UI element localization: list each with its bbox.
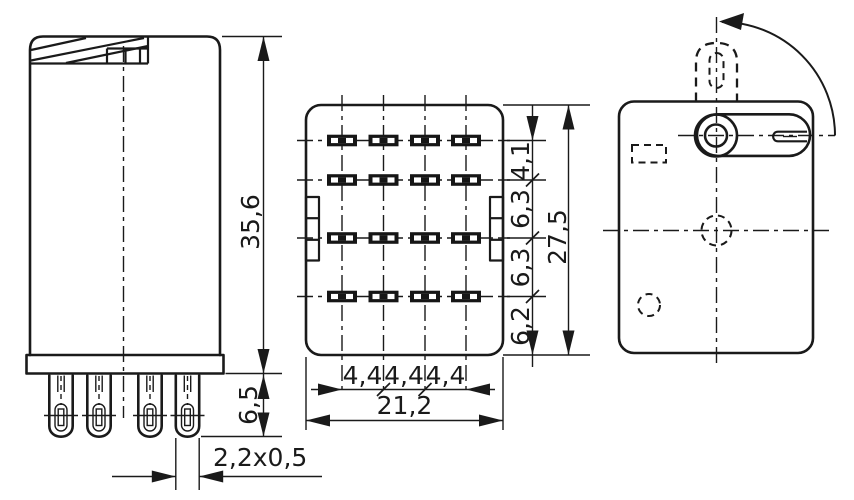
pin-socket-row [327,174,481,186]
left-notch [306,197,319,261]
pin-socket-grid [327,135,481,303]
relay-body-outline [30,37,220,356]
dim-label-pitch-2: 4,4 [384,361,424,390]
relay-dimensional-drawing: 35,6 6,5 2,2x0,5 [0,0,854,500]
dim-label-pin-cross-section: 2,2x0,5 [213,443,307,472]
pin [133,376,167,437]
dim-label-row-offset-1: 4,1 [506,141,535,181]
pin-socket-row [327,291,481,303]
front-view: 35,6 6,5 2,2x0,5 [27,37,323,491]
dim-base-height: 27,5 [543,105,575,355]
right-notch [490,197,503,261]
row-centerlines [297,141,510,297]
technical-drawing-canvas: 35,6 6,5 2,2x0,5 [0,0,854,500]
dim-pin-length: 6,5 [201,374,282,437]
dim-label-body-height: 35,6 [236,194,265,250]
front-pins [44,376,205,437]
relay-base-flange [27,355,224,374]
pin [44,376,78,437]
rotation-arrowhead [719,13,744,30]
pin [171,376,205,437]
dim-label-base-height: 27,5 [543,209,572,265]
dim-label-row-offset-2: 6,3 [506,189,535,229]
dim-label-pitch-3: 4,4 [426,361,466,390]
dim-label-row-offset-3: 6,3 [506,248,535,288]
bottom-view: 4,1 6,3 6,3 6,2 27,5 4,4 4,4 4,4 [297,95,590,430]
lever-rotation-arc [722,22,835,136]
hidden-small-hole [638,294,660,316]
dim-pin-cross-section: 2,2x0,5 [112,438,322,490]
retaining-clip-detail [30,37,148,64]
pin [82,376,116,437]
dim-label-pin-length: 6,5 [234,385,263,425]
dim-label-row-offset-4: 6,2 [506,306,535,346]
pin-socket-row [327,135,481,147]
dim-body-height: 35,6 [222,37,282,374]
pin-socket-row [327,232,481,244]
hidden-window [632,145,666,163]
dim-label-pitch-1: 4,4 [343,361,383,390]
dim-label-base-width: 21,2 [377,391,433,420]
side-view [603,13,835,366]
